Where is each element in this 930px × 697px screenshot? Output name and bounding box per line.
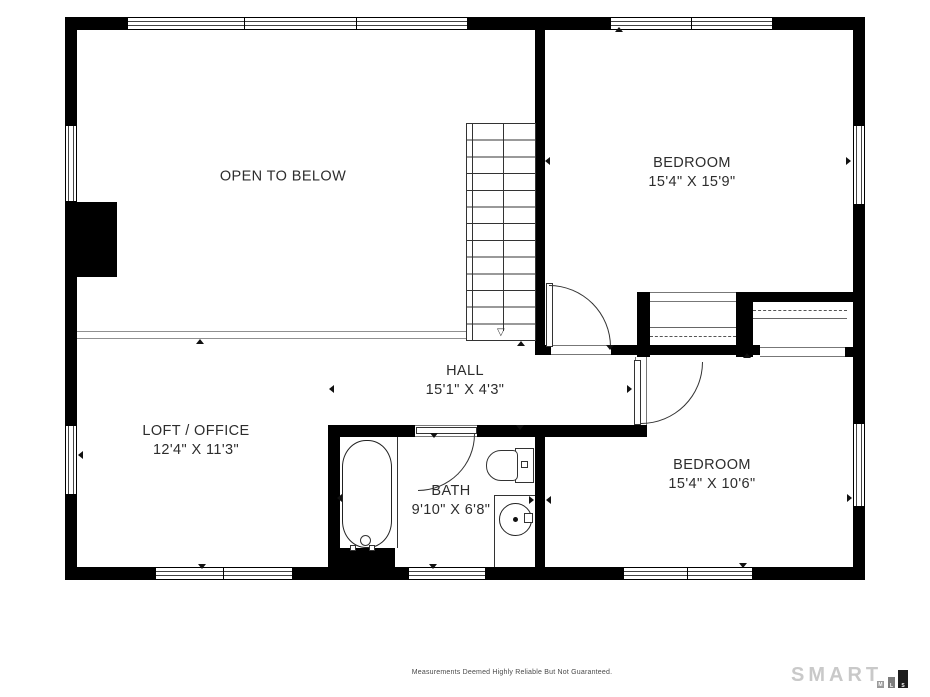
tub-handle-icon: [369, 545, 375, 551]
direction-marker-icon: [198, 564, 206, 569]
toilet-bowl: [486, 450, 518, 481]
closet-shelf-line: [753, 310, 847, 311]
room-dimensions: 15'4" X 15'9": [648, 173, 735, 192]
direction-marker-icon: [846, 157, 851, 165]
chimney-block: [65, 202, 117, 277]
railing-line: [77, 338, 466, 339]
direction-marker-icon: [545, 157, 550, 165]
closet-opening: [760, 347, 845, 357]
wall-segment: [853, 30, 865, 125]
window: [65, 425, 77, 495]
tub-handle-icon: [350, 545, 356, 551]
direction-marker-icon: [546, 496, 551, 504]
window: [691, 17, 773, 30]
direction-marker-icon: [615, 27, 623, 32]
door-swing: [549, 285, 611, 347]
room-name: BEDROOM: [648, 154, 735, 173]
room-label-open-to-below: OPEN TO BELOW: [220, 168, 346, 187]
room-label-bedroom-lower: BEDROOM 15'4" X 10'6": [668, 456, 755, 494]
toilet-flush-button: [521, 461, 528, 468]
wall-segment: [486, 567, 623, 580]
window: [853, 423, 865, 507]
room-name: BATH: [412, 482, 491, 501]
wall-segment: [773, 17, 865, 30]
wall-segment: [535, 435, 545, 567]
room-label-hall: HALL 15'1" X 4'3": [426, 362, 505, 400]
direction-marker-icon: [529, 496, 534, 504]
window: [65, 125, 77, 202]
direction-marker-icon: [739, 563, 747, 568]
room-name: LOFT / OFFICE: [142, 422, 249, 441]
direction-marker-icon: [430, 433, 438, 438]
railing-line: [77, 331, 466, 332]
logo-brand-text: SMART: [791, 664, 882, 687]
room-dimensions: 12'4" X 11'3": [142, 441, 249, 460]
room-dimensions: 15'4" X 10'6": [668, 475, 755, 494]
window: [687, 567, 753, 580]
closet-opening: [650, 292, 736, 302]
closet-wall: [637, 292, 650, 357]
wall-segment: [468, 17, 610, 30]
room-dimensions: 9'10" X 6'8": [412, 501, 491, 520]
direction-marker-icon: [847, 494, 852, 502]
door-leaf: [634, 360, 641, 425]
wall-segment: [328, 425, 415, 437]
direction-marker-icon: [517, 341, 525, 346]
wall-segment: [477, 425, 647, 437]
logo-block-s: S: [898, 670, 908, 688]
direction-marker-icon: [743, 353, 751, 358]
closet-rod-line: [650, 327, 736, 328]
direction-marker-icon: [78, 451, 83, 459]
wall-segment: [65, 277, 77, 425]
direction-marker-icon: [329, 385, 334, 393]
door-swing: [641, 362, 703, 424]
direction-marker-icon: [627, 385, 632, 393]
wall-segment: [65, 17, 77, 125]
room-name: OPEN TO BELOW: [220, 168, 346, 187]
window: [223, 567, 293, 580]
window: [356, 17, 468, 30]
door-leaf: [416, 427, 477, 434]
wall-segment: [845, 347, 857, 357]
direction-marker-icon: [337, 494, 342, 502]
window: [155, 567, 224, 580]
staircase: [466, 123, 536, 341]
closet-shelf-line: [650, 336, 736, 337]
closet-wall: [753, 292, 857, 302]
direction-marker-icon: [196, 339, 204, 344]
room-label-bedroom-upper: BEDROOM 15'4" X 15'9": [648, 154, 735, 192]
wall-segment: [853, 205, 865, 423]
stair-rail-line: [472, 124, 473, 340]
room-label-loft-office: LOFT / OFFICE 12'4" X 11'3": [142, 422, 249, 460]
logo-block-m: M: [877, 681, 884, 688]
direction-marker-icon: [429, 564, 437, 569]
vanity-counter-line: [494, 495, 495, 567]
room-name: BEDROOM: [668, 456, 755, 475]
measurement-disclaimer: Measurements Deemed Highly Reliable But …: [362, 669, 662, 676]
room-label-bath: BATH 9'10" X 6'8": [412, 482, 491, 520]
tub-surround-block: [337, 548, 395, 567]
window: [244, 17, 357, 30]
wall-segment: [753, 567, 865, 580]
stair-direction-line: [503, 124, 504, 331]
window: [623, 567, 688, 580]
sink-drain-icon: [513, 517, 518, 522]
window: [853, 125, 865, 205]
room-dimensions: 15'1" X 4'3": [426, 381, 505, 400]
bathtub: [342, 440, 392, 548]
wall-segment: [535, 30, 545, 355]
window: [408, 567, 486, 580]
tub-alcove-line: [397, 437, 398, 548]
window: [127, 17, 245, 30]
logo-block-l: L: [888, 677, 895, 688]
closet-wall: [736, 292, 753, 357]
direction-marker-icon: [606, 345, 614, 350]
sink-faucet-icon: [524, 513, 533, 523]
wall-segment: [65, 567, 155, 580]
room-name: HALL: [426, 362, 505, 381]
stairs-direction-arrow: ▽: [497, 327, 505, 338]
closet-rod-line: [753, 318, 847, 319]
direction-marker-icon: [516, 425, 524, 430]
floor-plan: ▽ OPEN TO BELOW BEDROOM 15'4" X 1: [0, 0, 930, 697]
wall-segment: [293, 567, 408, 580]
smartmls-logo: SMART M L S: [791, 662, 916, 692]
